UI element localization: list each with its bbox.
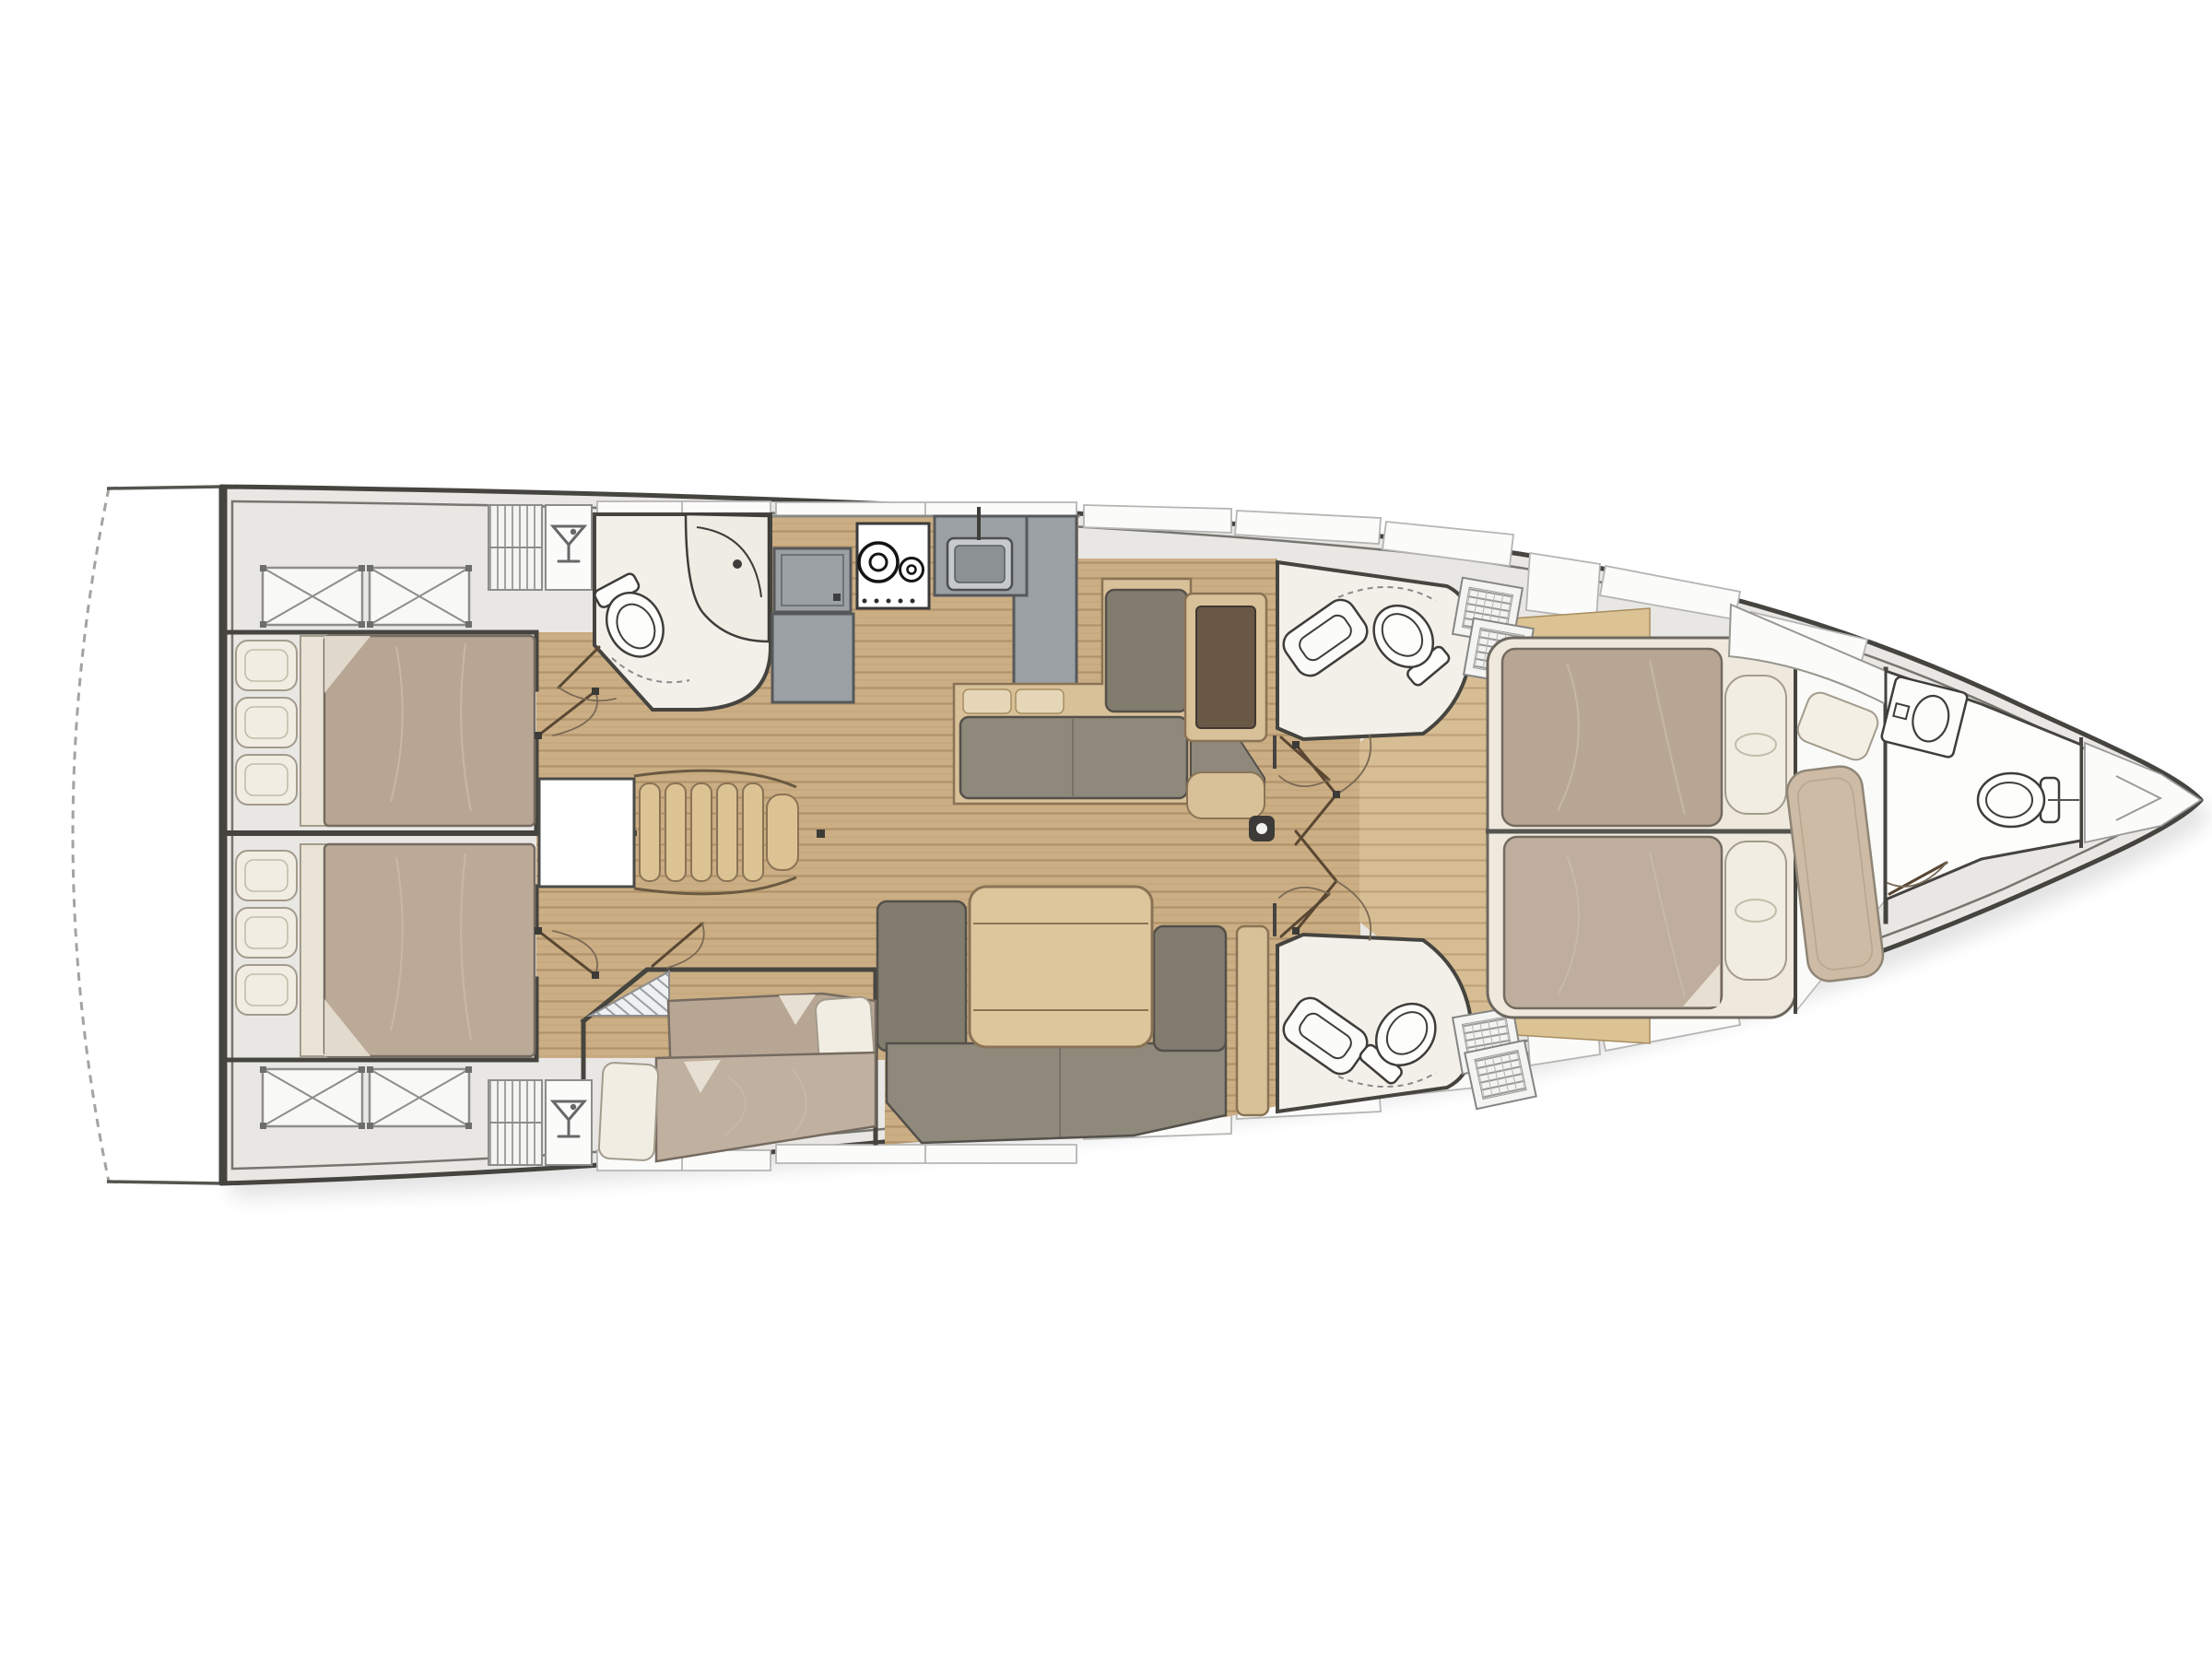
aft-cabin-port xyxy=(236,636,535,826)
mast-icon xyxy=(1249,816,1275,841)
fridge xyxy=(772,548,853,702)
yacht-floor-plan-page xyxy=(0,0,2212,1659)
head-forward-port xyxy=(1277,562,1473,739)
head-forward-starboard xyxy=(1277,935,1473,1112)
stove-icon xyxy=(857,524,929,608)
companionway xyxy=(539,771,798,894)
swim-platform xyxy=(73,487,221,1183)
yacht-floor-plan xyxy=(0,0,2212,1659)
sink-icon xyxy=(935,507,1027,595)
owner-cabin xyxy=(1486,605,1886,1018)
toilet-icon xyxy=(1978,773,2059,827)
salon-table xyxy=(970,887,1152,1047)
mid-cabin xyxy=(590,971,876,1161)
chart-table xyxy=(1185,594,1266,741)
